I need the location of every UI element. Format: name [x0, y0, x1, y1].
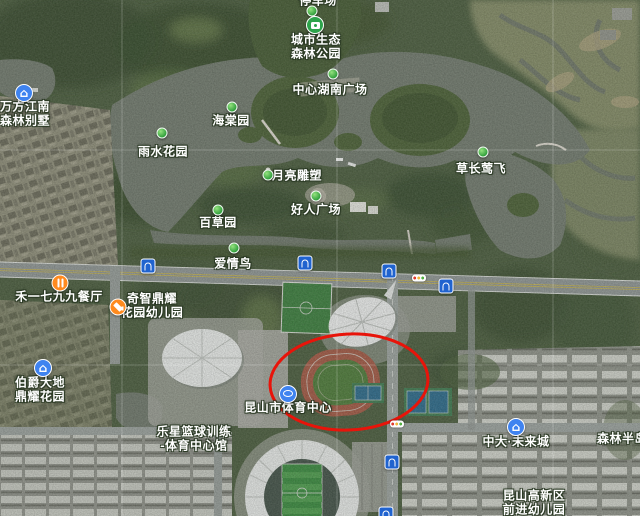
label-text-line: 中大·未来城 [483, 435, 550, 449]
traffic-light-icon[interactable] [412, 275, 426, 282]
love-bird-label[interactable]: 爱情鸟 [214, 257, 252, 271]
rain-garden-label[interactable]: 雨水花园 [138, 145, 188, 159]
label-text-line: 中心湖南广场 [292, 83, 367, 97]
begonia-garden-label[interactable]: 海棠园 [212, 114, 250, 128]
label-text-line: 百草园 [199, 216, 237, 230]
heyi-1799-restaurant-label[interactable]: 禾一七九九餐厅 [15, 290, 103, 304]
satellite-map[interactable]: 停车场城市生态森林公园中心湖南广场海棠园雨水花园草长莺飞月亮雕塑好人广场百草园爱… [0, 0, 640, 516]
traffic-light-icon[interactable] [390, 421, 404, 428]
metro-station-icon[interactable] [439, 279, 454, 294]
label-text-line: 草长莺飞 [456, 162, 506, 176]
lexing-basketball-training-hall-label[interactable]: 乐星篮球训练-体育中心馆 [156, 426, 231, 453]
house-icon[interactable] [15, 84, 33, 102]
green-dot-icon[interactable] [311, 191, 322, 202]
label-text-line: 昆山市体育中心 [244, 401, 332, 415]
metro-station-icon[interactable] [382, 264, 397, 279]
kunshan-sports-center-label[interactable]: 昆山市体育中心 [244, 401, 332, 415]
label-text-line: 好人广场 [291, 203, 341, 217]
parking-area-label[interactable]: 停车场 [299, 0, 337, 8]
label-text-line: 月亮雕塑 [272, 169, 322, 183]
metro-station-icon[interactable] [385, 455, 400, 470]
green-dot-icon[interactable] [478, 147, 489, 158]
label-text-line: 停车场 [299, 0, 337, 8]
label-text-line: 鼎耀花园 [15, 390, 65, 404]
green-dot-icon[interactable] [213, 205, 224, 216]
labels-layer: 停车场城市生态森林公园中心湖南广场海棠园雨水花园草长莺飞月亮雕塑好人广场百草园爱… [0, 0, 640, 516]
forest-peninsula-label[interactable]: 森林半岛 [597, 432, 640, 446]
label-text-line: 前进幼儿园 [503, 503, 566, 516]
green-dot-icon[interactable] [227, 102, 238, 113]
label-text-line: 万方江南 [0, 101, 50, 115]
label-text-line: 昆山高新区 [503, 490, 566, 504]
green-dot-icon[interactable] [307, 6, 318, 17]
grass-and-orioles-label[interactable]: 草长莺飞 [456, 162, 506, 176]
bojue-dadi-dingyao-garden-label[interactable]: 伯爵大地鼎耀花园 [15, 377, 65, 404]
label-text-line: 城市生态 [291, 34, 341, 48]
central-lake-south-plaza-label[interactable]: 中心湖南广场 [292, 83, 367, 97]
label-text-line: 禾一七九九餐厅 [15, 290, 103, 304]
metro-station-icon[interactable] [379, 507, 394, 516]
label-text-line: 花园幼儿园 [121, 306, 184, 320]
city-eco-forest-park-label[interactable]: 城市生态森林公园 [291, 34, 341, 61]
label-text-line: 爱情鸟 [214, 257, 252, 271]
metro-station-icon[interactable] [298, 256, 313, 271]
label-text-line: 乐星篮球训练 [156, 426, 231, 440]
moon-sculpture-label[interactable]: 月亮雕塑 [272, 169, 322, 183]
good-people-plaza-label[interactable]: 好人广场 [291, 203, 341, 217]
label-text-line: 奇智鼎耀 [121, 293, 184, 307]
zhongda-future-city-label[interactable]: 中大·未来城 [483, 435, 550, 449]
label-text-line: 森林半岛 [597, 432, 640, 446]
label-text-line: 海棠园 [212, 114, 250, 128]
green-dot-icon[interactable] [157, 128, 168, 139]
green-dot-icon[interactable] [229, 243, 240, 254]
metro-station-icon[interactable] [141, 259, 156, 274]
house-icon[interactable] [34, 359, 52, 377]
hundred-herb-garden-label[interactable]: 百草园 [199, 216, 237, 230]
label-text-line: -体育中心馆 [156, 439, 231, 453]
house-icon[interactable] [507, 418, 525, 436]
qizhi-dingyao-kindergarten-label[interactable]: 奇智鼎耀花园幼儿园 [121, 293, 184, 320]
school-icon[interactable] [110, 299, 127, 316]
label-text-line: 雨水花园 [138, 145, 188, 159]
sports-icon[interactable] [279, 385, 297, 403]
kunshan-hitech-qianjin-kindergarten-label[interactable]: 昆山高新区前进幼儿园 [503, 490, 566, 516]
label-text-line: 伯爵大地 [15, 377, 65, 391]
scenic-icon[interactable] [306, 16, 324, 34]
restaurant-icon[interactable] [52, 275, 69, 292]
label-text-line: 森林公园 [291, 47, 341, 61]
green-dot-icon[interactable] [328, 69, 339, 80]
green-dot-icon[interactable] [263, 170, 274, 181]
wanfang-jiangnan-forest-villa-label[interactable]: 万方江南森林别墅 [0, 101, 50, 128]
label-text-line: 森林别墅 [0, 114, 50, 128]
